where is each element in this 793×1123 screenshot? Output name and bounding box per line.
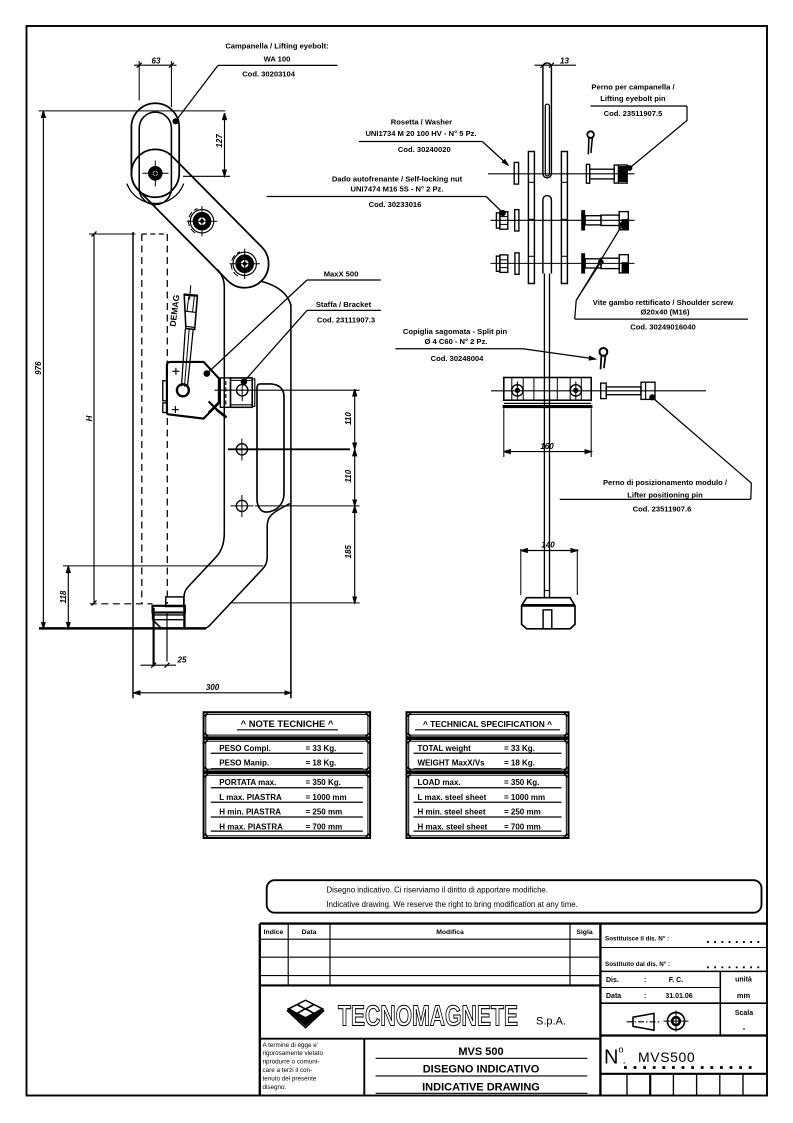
svg-text:Modifica: Modifica (436, 929, 464, 936)
svg-text:= 18 Kg.: = 18 Kg. (306, 759, 337, 768)
svg-text:F. C.: F. C. (669, 977, 683, 984)
svg-text:= 1000 mm: = 1000 mm (504, 793, 545, 802)
svg-text:Sostituisce il dis. N° :: Sostituisce il dis. N° : (605, 935, 669, 943)
svg-text:976: 976 (34, 361, 43, 375)
svg-text:= 250 mm: = 250 mm (504, 807, 541, 816)
svg-text:Staffa / Bracket: Staffa / Bracket (316, 300, 372, 309)
svg-text:Cod. 23511907.6: Cod. 23511907.6 (633, 504, 692, 513)
svg-text:H: H (85, 415, 94, 421)
svg-text:= 18 Kg.: = 18 Kg. (504, 759, 535, 768)
svg-text:Perno per campanella /: Perno per campanella / (591, 83, 675, 92)
svg-text:Lifter positioning pin: Lifter positioning pin (627, 490, 703, 499)
svg-text:Cod. 30248004: Cod. 30248004 (431, 354, 485, 363)
svg-text:118: 118 (59, 590, 68, 603)
svg-text:Indice: Indice (264, 929, 284, 936)
svg-text:riprodurre o comuni-: riprodurre o comuni- (263, 1059, 320, 1066)
svg-text:A termine di ègge e': A termine di ègge e' (263, 1042, 318, 1049)
svg-text:mm: mm (737, 991, 751, 1000)
svg-text:13: 13 (560, 57, 569, 66)
svg-text:160: 160 (540, 442, 554, 451)
svg-text:UNI7474 M16 5S - N° 2 Pz.: UNI7474 M16 5S - N° 2 Pz. (351, 185, 444, 194)
svg-text:Indicative drawing. We reserve: Indicative drawing. We reserve the right… (327, 900, 578, 909)
svg-text:Lifting eyebolt pin: Lifting eyebolt pin (600, 94, 666, 103)
svg-text:= 33 Kg.: = 33 Kg. (504, 744, 535, 753)
svg-text:Vite gambo rettificato / Shoul: Vite gambo rettificato / Shoulder screw (593, 298, 733, 307)
svg-text:TOTAL weight: TOTAL weight (418, 744, 472, 753)
svg-text:Cod. 30240020: Cod. 30240020 (398, 145, 451, 154)
svg-text:Cod. 30249016040: Cod. 30249016040 (630, 323, 695, 332)
svg-text:MVS500: MVS500 (638, 1049, 695, 1065)
svg-text:Dis.: Dis. (606, 977, 619, 984)
svg-text:31.01.06: 31.01.06 (665, 993, 692, 1000)
svg-text:disegno.: disegno. (263, 1084, 287, 1091)
svg-text:N: N (604, 1047, 618, 1069)
svg-text:-: - (743, 1024, 746, 1033)
svg-text:UNI1734 M 20 100 HV - N° 5 Pz.: UNI1734 M 20 100 HV - N° 5 Pz. (365, 129, 476, 138)
svg-text:H min. steel sheet: H min. steel sheet (418, 807, 486, 816)
svg-text::: : (644, 993, 646, 1000)
svg-text:MVS 500: MVS 500 (458, 1046, 503, 1058)
svg-text:unità: unità (735, 976, 752, 983)
svg-text:= 700 mm: = 700 mm (306, 822, 343, 831)
svg-text:Ø 4 C60 - N° 2 Pz.: Ø 4 C60 - N° 2 Pz. (425, 337, 488, 346)
svg-text:= 350 Kg.: = 350 Kg. (306, 778, 341, 787)
svg-text:25: 25 (177, 656, 187, 665)
svg-text:care a terzi il con-: care a terzi il con- (263, 1067, 313, 1074)
svg-text:Cod. 30233016: Cod. 30233016 (369, 200, 422, 209)
svg-text:H min. PIASTRA: H min. PIASTRA (219, 807, 281, 816)
svg-text:= 350 Kg.: = 350 Kg. (504, 778, 539, 787)
svg-text:Scala: Scala (735, 1010, 753, 1017)
svg-text::: : (644, 977, 646, 984)
svg-text:TECNOMAGNETE: TECNOMAGNETE (338, 1001, 518, 1033)
svg-text:Sostituito dal dis. N° :: Sostituito dal dis. N° : (605, 960, 670, 968)
svg-text:PESO Compl.: PESO Compl. (219, 744, 271, 753)
svg-text:Ø20x40 (M16): Ø20x40 (M16) (641, 308, 690, 317)
svg-text:127: 127 (215, 134, 224, 148)
svg-text:300: 300 (206, 683, 220, 692)
svg-text:rigorosamente vietato: rigorosamente vietato (263, 1050, 324, 1057)
svg-text:tenuto del presente: tenuto del presente (263, 1075, 317, 1082)
svg-text:Rosetta / Washer: Rosetta / Washer (391, 117, 452, 126)
svg-text:185: 185 (344, 545, 353, 559)
svg-text:DISEGNO INDICATIVO: DISEGNO INDICATIVO (423, 1064, 540, 1076)
svg-text:140: 140 (541, 541, 555, 550)
svg-text:Sigla: Sigla (576, 929, 592, 936)
svg-text:L max. PIASTRA: L max. PIASTRA (219, 793, 282, 802)
svg-text:LOAD max.: LOAD max. (418, 778, 461, 787)
svg-text:^ TECHNICAL SPECIFICATION ^: ^ TECHNICAL SPECIFICATION ^ (423, 719, 552, 729)
svg-text:Disegno indicativo. Ci riservi: Disegno indicativo. Ci riserviamo il dir… (327, 885, 548, 894)
svg-text:= 250 mm: = 250 mm (306, 807, 343, 816)
svg-text:H max. PIASTRA: H max. PIASTRA (219, 822, 283, 831)
svg-text:Data: Data (302, 929, 317, 936)
svg-text:PESO Manip.: PESO Manip. (219, 759, 269, 768)
svg-text:Perno di posizionamento modulo: Perno di posizionamento modulo / (603, 478, 728, 487)
svg-text:PORTATA max.: PORTATA max. (219, 778, 276, 787)
svg-text:Campanella / Lifting eyebolt:: Campanella / Lifting eyebolt: (225, 42, 328, 51)
svg-text:^ NOTE TECNICHE ^: ^ NOTE TECNICHE ^ (241, 718, 334, 729)
svg-text:H max. steel sheet: H max. steel sheet (418, 822, 488, 831)
svg-text:Cod. 23111907.3: Cod. 23111907.3 (317, 316, 375, 325)
svg-text:110: 110 (344, 469, 353, 482)
svg-text:S.p.A.: S.p.A. (536, 1016, 566, 1028)
svg-text:63: 63 (152, 56, 161, 65)
svg-text:= 700 mm: = 700 mm (504, 822, 541, 831)
svg-text:Cod. 30203104: Cod. 30203104 (242, 70, 296, 79)
svg-text:= 33 Kg.: = 33 Kg. (306, 744, 337, 753)
svg-text:110: 110 (344, 412, 353, 425)
svg-text:WA 100: WA 100 (264, 55, 291, 64)
svg-text:INDICATIVE DRAWING: INDICATIVE DRAWING (422, 1081, 540, 1093)
svg-text:MaxX 500: MaxX 500 (324, 270, 359, 279)
svg-text:WEIGHT MaxX/Vs: WEIGHT MaxX/Vs (418, 759, 486, 768)
svg-text:Cod. 23511907.5: Cod. 23511907.5 (604, 109, 663, 118)
svg-text:L max. steel sheet: L max. steel sheet (418, 793, 487, 802)
svg-text:Copiglia sagomata - Split pin: Copiglia sagomata - Split pin (403, 327, 508, 336)
svg-text:.: . (623, 1053, 626, 1067)
svg-text:Dado autofrenante / Self-locki: Dado autofrenante / Self-locking nut (332, 174, 463, 183)
svg-text:Data: Data (606, 993, 621, 1000)
svg-text:= 1000 mm: = 1000 mm (306, 793, 347, 802)
